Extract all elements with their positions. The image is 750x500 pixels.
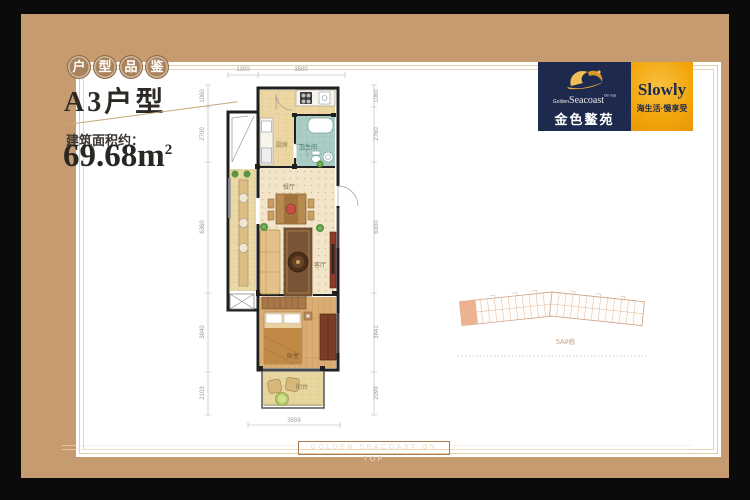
badge-char: 型 <box>93 55 117 79</box>
band-rule-left-top <box>62 445 296 446</box>
siteplan-right-wing <box>549 289 644 326</box>
kitchen-sink <box>319 92 330 104</box>
dim-left-4: 3840 <box>200 325 206 339</box>
golden-wave-emblem-icon <box>563 66 607 90</box>
kitchen-sink-2 <box>262 121 272 132</box>
floorplan-drawing: 厨房 卫生间 餐厅 客厅 卧室 阳台 1300 3500 3559 1060 2… <box>198 58 384 436</box>
logo-ontop-text: On top <box>604 92 616 97</box>
area-number: 69.68m <box>63 138 165 174</box>
washing-machine <box>323 152 333 162</box>
toilet-tank <box>312 151 320 155</box>
tv <box>332 244 335 274</box>
logo-seacoast-text: Seacoast <box>569 95 604 106</box>
bath-door-opening <box>294 144 297 158</box>
balcony-label: 阳台 <box>296 383 308 391</box>
kitchen-label: 厨房 <box>276 141 288 149</box>
dim-bottom: 3559 <box>287 418 301 424</box>
dim-right-5: 2099 <box>374 386 380 400</box>
sofa <box>260 230 280 294</box>
badge-char: 鉴 <box>145 55 169 79</box>
highlight-unit <box>460 300 478 326</box>
dining-label: 餐厅 <box>283 183 295 191</box>
logo-slogan-cn: 海生活·慢享受 <box>637 103 688 114</box>
building-label: 5A#栋 <box>556 337 575 346</box>
badge-char: 户 <box>67 55 91 79</box>
coffee-table-deco <box>296 260 300 264</box>
bathtub <box>308 118 333 133</box>
dim-right-1: 1060 <box>374 89 380 103</box>
logo-slogan-en: Slowly <box>638 80 686 100</box>
entry-door-arc <box>338 186 358 206</box>
logo-navy-panel: GoldenSeacoastOn top 金色鳌苑 <box>538 62 631 131</box>
dim-left-2: 2700 <box>200 127 206 141</box>
logo-gold-panel: Slowly 海生活·慢享受 <box>631 62 693 131</box>
bath-label: 卫生间 <box>299 143 317 151</box>
brand-logo: GoldenSeacoastOn top 金色鳌苑 Slowly 海生活·慢享受 <box>538 62 693 131</box>
dim-right-4: 3841 <box>374 325 380 339</box>
series-badge: 户 型 品 鉴 <box>67 55 169 79</box>
kitchen-cabinet <box>262 148 272 163</box>
logo-golden-text: Golden <box>553 99 569 105</box>
service-balcony-opening <box>257 198 260 224</box>
lamp <box>306 314 310 318</box>
bedroom-label: 卧室 <box>287 352 299 360</box>
pillow-right <box>284 314 300 323</box>
logo-chinese-name: 金色鳌苑 <box>554 109 614 128</box>
unit-title: A3户型 <box>64 80 166 120</box>
dim-left-3: 6360 <box>200 220 206 234</box>
siteplan-left-wing <box>459 289 554 326</box>
dim-top-right: 3500 <box>294 67 308 73</box>
balcony-chair-1 <box>267 379 282 394</box>
area-superscript: 2 <box>165 142 173 158</box>
band-rule-right-top <box>450 445 692 446</box>
pillow-left <box>266 314 282 323</box>
balcony-table-top <box>278 395 286 403</box>
band-rule-left-bottom <box>62 449 296 450</box>
closet <box>262 297 306 309</box>
dim-left-1: 1060 <box>200 89 206 103</box>
siteplan-keymap: 5A#栋 <box>452 284 652 364</box>
centerpiece <box>286 204 296 214</box>
dim-left-5: 2103 <box>200 386 206 400</box>
logo-english-line: GoldenSeacoastOn top <box>553 91 616 107</box>
area-value: 69.68m2 <box>63 138 172 175</box>
poster-page: { "badges": { "chars": ["户","型","品","鉴"]… <box>0 0 750 500</box>
badge-char: 品 <box>119 55 143 79</box>
dim-top-left: 1300 <box>236 67 250 73</box>
footer-band-text: GOLDEN SEACOAST ON TOP <box>298 441 450 455</box>
living-label: 客厅 <box>314 261 326 269</box>
dim-right-3: 6300 <box>374 220 380 234</box>
dim-right-2: 2760 <box>374 127 380 141</box>
band-rule-right-bottom <box>450 449 692 450</box>
